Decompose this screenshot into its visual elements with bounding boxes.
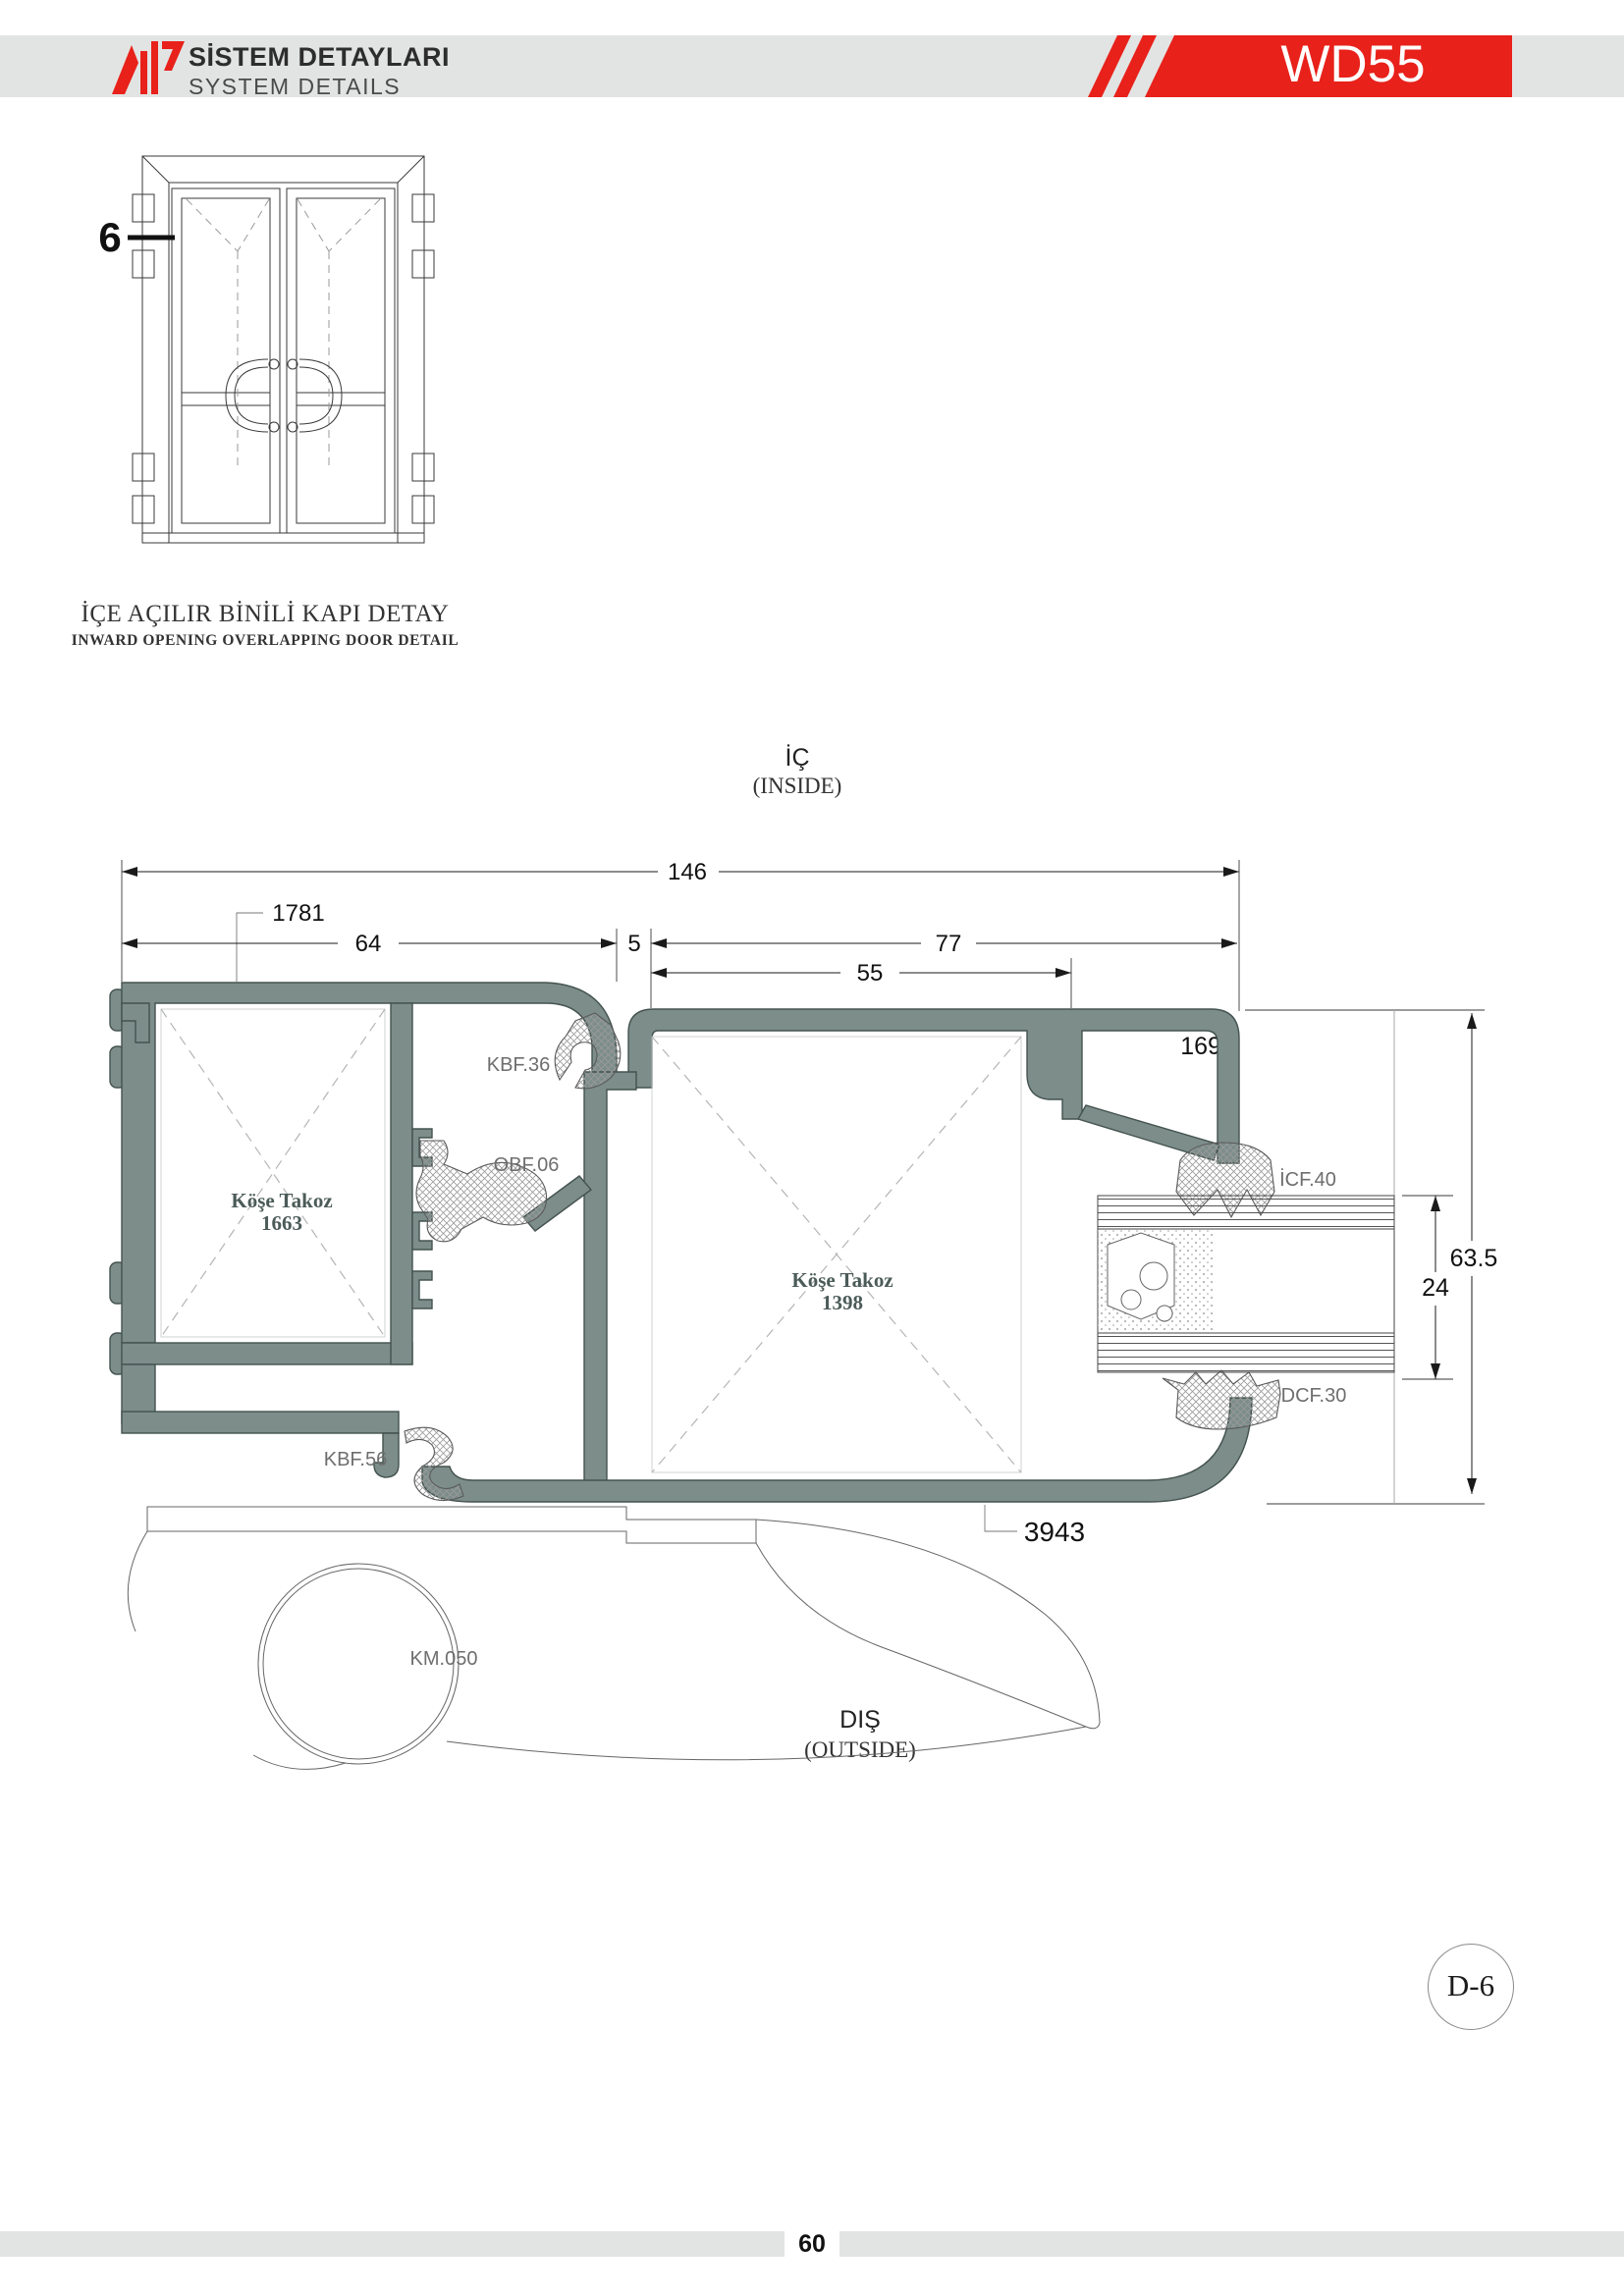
door-handles-icon	[226, 359, 342, 432]
caption-turkish: İÇE AÇILIR BİNİLİ KAPI DETAY	[69, 601, 461, 628]
part-label-dcf30: DCF.30	[1281, 1385, 1347, 1407]
brand-logo-icon	[110, 41, 185, 96]
dim-63-5: 63.5	[1450, 1013, 1498, 1494]
svg-text:146: 146	[668, 859, 707, 885]
code-3943: 3943	[985, 1505, 1085, 1547]
dim-5: 5	[627, 931, 640, 957]
dim-24: 24	[1422, 1196, 1449, 1379]
hinge-icon	[133, 194, 434, 523]
dim-55: 55	[651, 960, 1071, 987]
part-label-icf40: İCF.40	[1279, 1168, 1336, 1191]
page-title: SİSTEM DETAYLARI	[189, 44, 450, 71]
corner-block-1398: Köşe Takoz 1398	[652, 1037, 1021, 1472]
dim-77: 77	[651, 931, 1237, 957]
svg-text:1663: 1663	[261, 1211, 302, 1235]
part-label-kbf56: KBF.56	[324, 1449, 387, 1470]
detail-callout: 6	[98, 214, 121, 260]
detail-reference-badge: D-6	[1428, 1944, 1514, 2030]
svg-text:63.5: 63.5	[1450, 1245, 1498, 1272]
product-code: WD55	[1280, 35, 1425, 93]
product-code-tag: WD55	[1041, 35, 1624, 97]
svg-text:1781: 1781	[272, 900, 324, 927]
part-label-km050: KM.050	[410, 1648, 478, 1670]
opening-direction-lines	[187, 199, 380, 469]
svg-text:Köşe Takoz: Köşe Takoz	[791, 1268, 893, 1292]
hinge-km050-drawing	[128, 1507, 1100, 1769]
code-1781: 1781	[237, 900, 325, 982]
svg-text:55: 55	[857, 960, 884, 987]
svg-text:77: 77	[936, 931, 962, 957]
gasket-dcf30	[1163, 1370, 1280, 1429]
part-label-kbf36: KBF.36	[487, 1054, 550, 1076]
door-leaf-right	[287, 188, 395, 533]
svg-text:3943: 3943	[1024, 1517, 1085, 1547]
catalog-page: { "header": { "title_tr": "SİSTEM DETAYL…	[0, 0, 1624, 2296]
header-titles: SİSTEM DETAYLARI SYSTEM DETAILS	[189, 44, 450, 98]
frame-outer	[142, 156, 424, 543]
dim-146: 146	[122, 859, 1239, 885]
svg-text:24: 24	[1422, 1274, 1449, 1302]
section-detail-drawing: İÇ (INSIDE) DIŞ (OUTSIDE) 146 1781 64 5	[0, 717, 1624, 1806]
caption-english: INWARD OPENING OVERLAPPING DOOR DETAIL	[69, 632, 461, 650]
door-panel	[1098, 1196, 1394, 1372]
door-leaf-left	[172, 188, 280, 533]
gasket-kbf56	[405, 1427, 463, 1500]
frame-inner	[169, 183, 398, 543]
gasket-kbf36	[555, 1013, 621, 1089]
outside-label-en: (OUTSIDE)	[804, 1737, 916, 1762]
elevation-caption: İÇE AÇILIR BİNİLİ KAPI DETAY INWARD OPEN…	[69, 601, 461, 650]
corner-block-1663: Köşe Takoz 1663	[161, 1009, 385, 1337]
svg-text:Köşe Takoz: Köşe Takoz	[231, 1189, 332, 1212]
page-number: 60	[785, 2230, 839, 2256]
dim-64: 64	[122, 931, 617, 957]
inside-label-en: (INSIDE)	[753, 774, 842, 798]
part-label-obf06: OBF.06	[494, 1154, 560, 1176]
outside-label-tr: DIŞ	[839, 1706, 881, 1734]
door-elevation-drawing: 6	[79, 137, 491, 599]
svg-text:64: 64	[355, 931, 382, 957]
svg-text:1398: 1398	[822, 1291, 863, 1314]
inside-label-tr: İÇ	[785, 743, 810, 772]
page-subtitle: SYSTEM DETAILS	[189, 76, 450, 98]
